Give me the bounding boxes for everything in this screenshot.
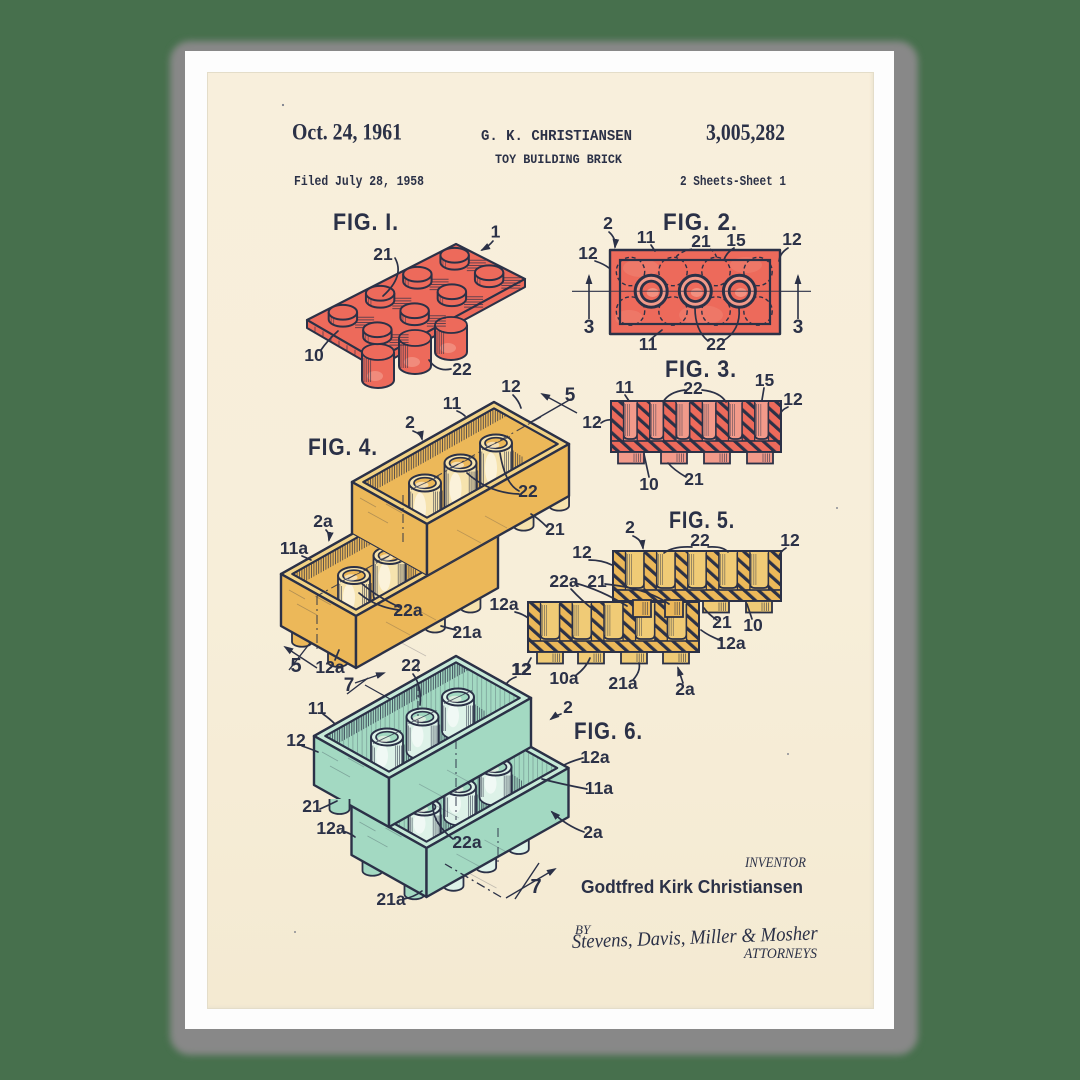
svg-text:21a: 21a [608, 673, 637, 693]
svg-text:11: 11 [615, 377, 634, 397]
svg-text:Oct. 24, 1961: Oct. 24, 1961 [292, 120, 402, 146]
svg-text:11a: 11a [585, 778, 613, 798]
svg-text:Filed July 28, 1958: Filed July 28, 1958 [294, 174, 424, 190]
svg-text:21: 21 [545, 519, 565, 539]
svg-text:22: 22 [401, 655, 421, 675]
svg-text:21: 21 [712, 612, 732, 632]
svg-text:12a: 12a [316, 818, 345, 838]
svg-text:7: 7 [344, 675, 355, 696]
svg-text:7: 7 [530, 876, 541, 898]
svg-text:22: 22 [690, 530, 710, 550]
svg-text:10: 10 [304, 345, 324, 365]
svg-text:12a: 12a [716, 633, 745, 653]
svg-text:11: 11 [637, 227, 656, 247]
svg-text:15: 15 [726, 230, 746, 250]
svg-text:2: 2 [405, 412, 415, 432]
svg-text:Godtfred Kirk Christiansen: Godtfred Kirk Christiansen [581, 877, 803, 897]
svg-text:22: 22 [706, 334, 726, 354]
svg-text:21: 21 [587, 571, 607, 591]
svg-text:21a: 21a [376, 889, 405, 909]
svg-text:11: 11 [443, 393, 462, 413]
svg-text:12a: 12a [315, 657, 344, 677]
svg-text:FIG. 6.: FIG. 6. [574, 718, 643, 745]
svg-text:10: 10 [743, 615, 763, 635]
svg-text:3: 3 [793, 317, 804, 338]
svg-text:12a: 12a [580, 747, 609, 767]
svg-text:22: 22 [518, 481, 538, 501]
svg-text:3: 3 [584, 317, 595, 338]
svg-text:TOY BUILDING BRICK: TOY BUILDING BRICK [495, 152, 622, 167]
svg-text:21: 21 [684, 469, 704, 489]
svg-text:FIG. I.: FIG. I. [333, 209, 399, 236]
svg-text:2: 2 [563, 697, 573, 717]
svg-text:2: 2 [603, 213, 613, 233]
svg-text:15: 15 [755, 370, 775, 390]
svg-text:12: 12 [578, 243, 598, 263]
svg-text:1: 1 [491, 222, 501, 242]
svg-text:22a: 22a [549, 571, 578, 591]
svg-text:5: 5 [565, 385, 576, 406]
svg-text:INVENTOR: INVENTOR [744, 855, 806, 871]
svg-text:12: 12 [582, 412, 602, 432]
svg-text:5: 5 [290, 655, 301, 677]
svg-text:3,005,282: 3,005,282 [706, 120, 785, 146]
svg-text:21: 21 [373, 244, 393, 264]
svg-text:FIG. 4.: FIG. 4. [308, 434, 378, 461]
svg-text:12: 12 [572, 542, 592, 562]
svg-text:12a: 12a [489, 594, 518, 614]
svg-text:2 Sheets-Sheet 1: 2 Sheets-Sheet 1 [680, 174, 786, 190]
svg-text:12: 12 [501, 376, 521, 396]
svg-text:ATTORNEYS: ATTORNEYS [743, 946, 817, 962]
svg-text:12: 12 [511, 659, 531, 679]
svg-text:2a: 2a [583, 822, 603, 842]
svg-text:21: 21 [302, 796, 322, 816]
svg-text:21: 21 [691, 231, 711, 251]
svg-text:11a: 11a [280, 538, 308, 558]
svg-text:22: 22 [683, 378, 703, 398]
svg-text:10a: 10a [549, 668, 578, 688]
svg-text:2a: 2a [675, 679, 695, 699]
svg-text:21a: 21a [452, 622, 481, 642]
svg-text:2a: 2a [313, 511, 333, 531]
svg-text:12: 12 [780, 530, 800, 550]
svg-text:12: 12 [783, 389, 803, 409]
svg-text:2: 2 [625, 517, 635, 537]
svg-text:12: 12 [782, 229, 802, 249]
svg-text:G. K. CHRISTIANSEN: G. K. CHRISTIANSEN [481, 128, 632, 145]
svg-text:22: 22 [452, 359, 472, 379]
svg-text:22a: 22a [452, 832, 481, 852]
